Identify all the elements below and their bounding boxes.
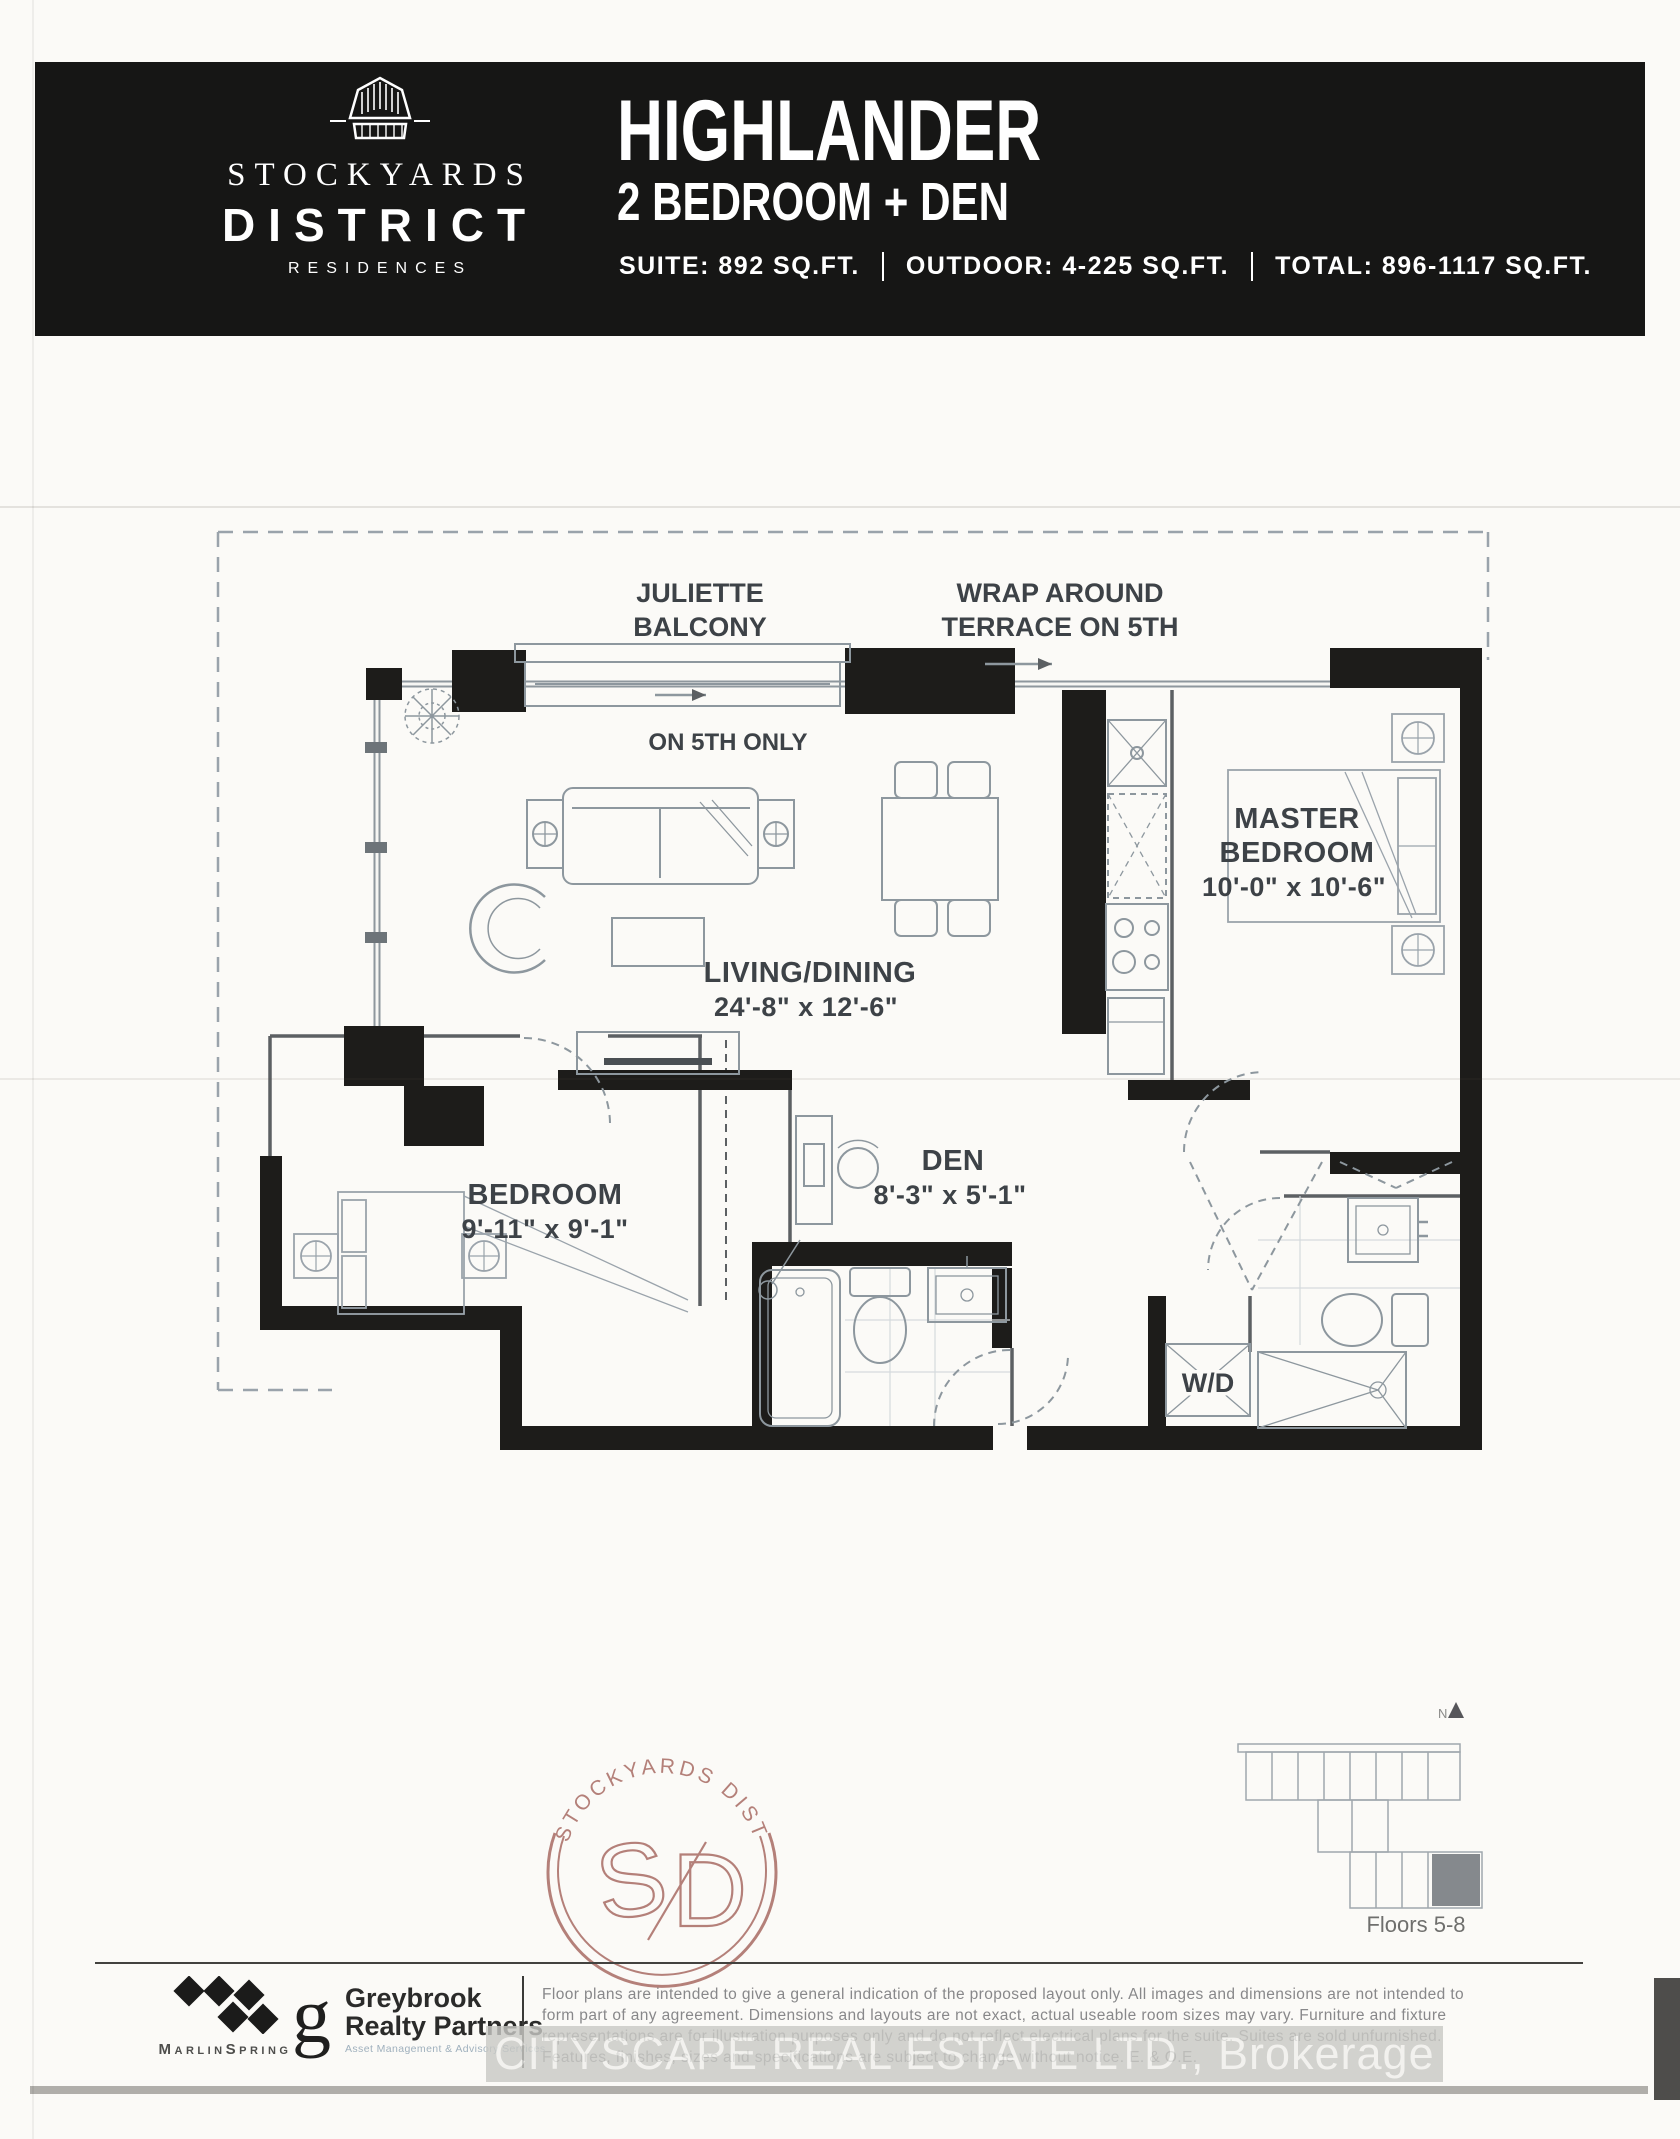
key-plan: N Floors 5-8 bbox=[1238, 1702, 1482, 1937]
laundry-closet: W/D bbox=[1166, 1344, 1250, 1416]
disclaimer-line: form part of any agreement. Dimensions a… bbox=[542, 2005, 1464, 2026]
scan-edge bbox=[32, 0, 34, 2139]
bedroom-dims: 9'-11" x 9'-1" bbox=[461, 1214, 628, 1244]
terrace-label-1: WRAP AROUND bbox=[957, 578, 1164, 608]
keyplan-unit-highlight bbox=[1432, 1854, 1480, 1906]
north-label: N bbox=[1438, 1706, 1447, 1721]
floorplan-sheet: STOCKYARDS DISTRICT RESIDENCES HIGHLANDE… bbox=[0, 0, 1680, 2139]
greybrook-name-1: Greybrook bbox=[345, 1984, 546, 2012]
on5th-label: ON 5TH ONLY bbox=[648, 729, 807, 756]
living-furniture bbox=[470, 788, 794, 1074]
scan-fold-line bbox=[0, 1078, 1680, 1080]
den-name: DEN bbox=[922, 1145, 985, 1177]
seal-arc-text: STOCKYARDS DISTRICT bbox=[0, 0, 772, 1845]
scan-edge bbox=[1654, 1978, 1680, 2100]
disclaimer-line: Floor plans are intended to give a gener… bbox=[542, 1984, 1464, 2005]
seal-monogram-s: S bbox=[589, 1818, 674, 1943]
greybrook-g-icon: g bbox=[292, 1984, 331, 2055]
terrace-label-2: TERRACE ON 5TH bbox=[941, 612, 1178, 642]
footer-rule bbox=[95, 1962, 1583, 1964]
door-swings bbox=[524, 1038, 1452, 1426]
den-furniture bbox=[759, 1116, 878, 1299]
master-name-1: MASTER bbox=[1234, 803, 1359, 835]
walls bbox=[260, 648, 1482, 1450]
scan-fold-line bbox=[0, 506, 1680, 508]
scan-edge bbox=[30, 2086, 1648, 2094]
ensuite-bathroom bbox=[1258, 1196, 1460, 1428]
living-name: LIVING/DINING bbox=[704, 957, 917, 989]
bedroom-name: BEDROOM bbox=[468, 1179, 623, 1211]
juliette-label-1: JULIETTE bbox=[636, 578, 764, 608]
den-dims: 8'-3" x 5'-1" bbox=[873, 1180, 1026, 1210]
dining-set bbox=[882, 762, 998, 936]
floor-plan: W/D JULIETTE BALCONY WRAP AROUND TERRACE… bbox=[0, 0, 1680, 2139]
master-dims: 10'-0" x 10'-6" bbox=[1202, 872, 1386, 902]
marlinspring-diamonds-icon bbox=[160, 1976, 290, 2034]
laundry-label: W/D bbox=[1182, 1368, 1234, 1398]
marlinspring-logo: MarlinSpring bbox=[140, 1976, 310, 2058]
main-bathroom bbox=[760, 1256, 1010, 1426]
juliette-label-2: BALCONY bbox=[633, 612, 767, 642]
living-dims: 24'-8" x 12'-6" bbox=[714, 992, 898, 1022]
marlinspring-wordmark: MarlinSpring bbox=[140, 2041, 310, 2058]
district-seal: STOCKYARDS DISTRICT S D bbox=[0, 0, 776, 1986]
seal-monogram-d: D bbox=[672, 1833, 747, 1949]
master-name-2: BEDROOM bbox=[1220, 837, 1375, 869]
kitchen bbox=[1106, 720, 1168, 1074]
keyplan-caption: Floors 5-8 bbox=[1366, 1912, 1465, 1937]
brokerage-watermark: CITYSCAPE REAL ESTATE LTD., Brokerage bbox=[486, 2026, 1443, 2082]
plant bbox=[405, 689, 459, 743]
north-arrow-icon bbox=[1448, 1702, 1464, 1718]
